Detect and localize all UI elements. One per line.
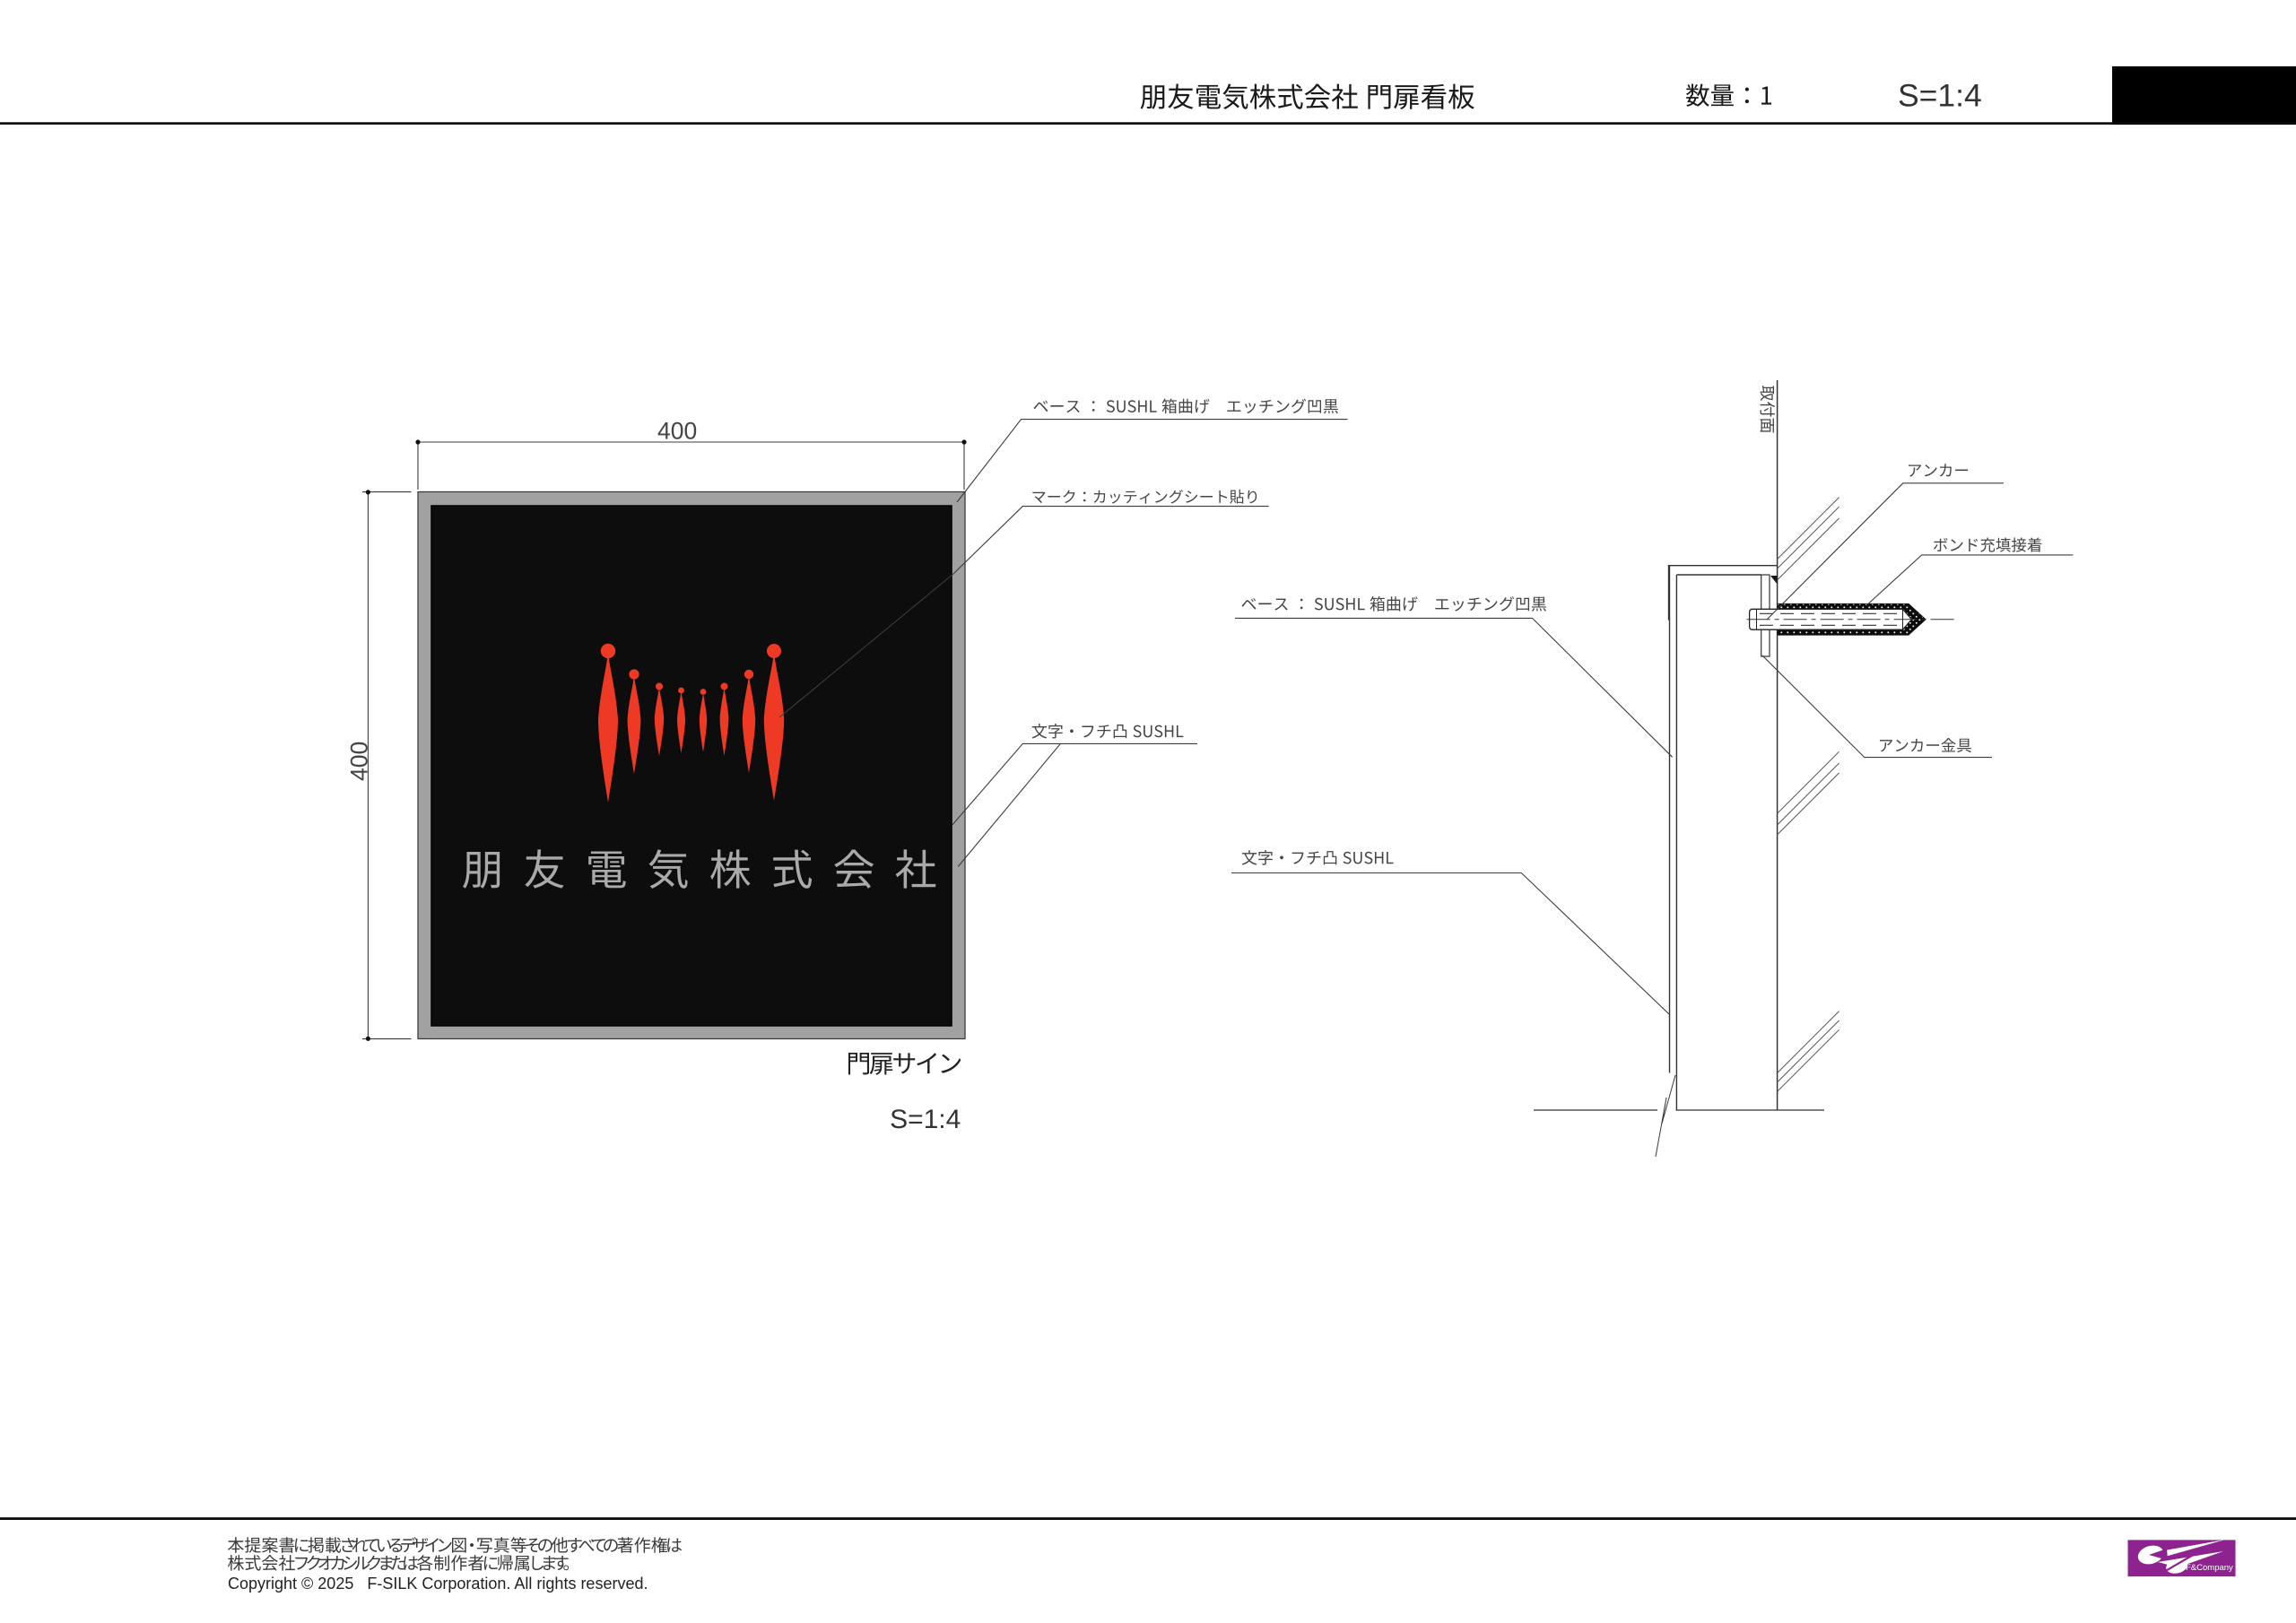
svg-text:Copyright © 2025 F-SILK Corp: Copyright © 2025 F-SILK Corporation. All…	[228, 1575, 648, 1593]
svg-text:S=1:4: S=1:4	[1898, 78, 1982, 114]
svg-text:400: 400	[346, 742, 373, 781]
svg-text:F&Company: F&Company	[2186, 1563, 2233, 1573]
svg-text:400: 400	[657, 418, 697, 445]
svg-text:S=1:4: S=1:4	[890, 1105, 961, 1134]
